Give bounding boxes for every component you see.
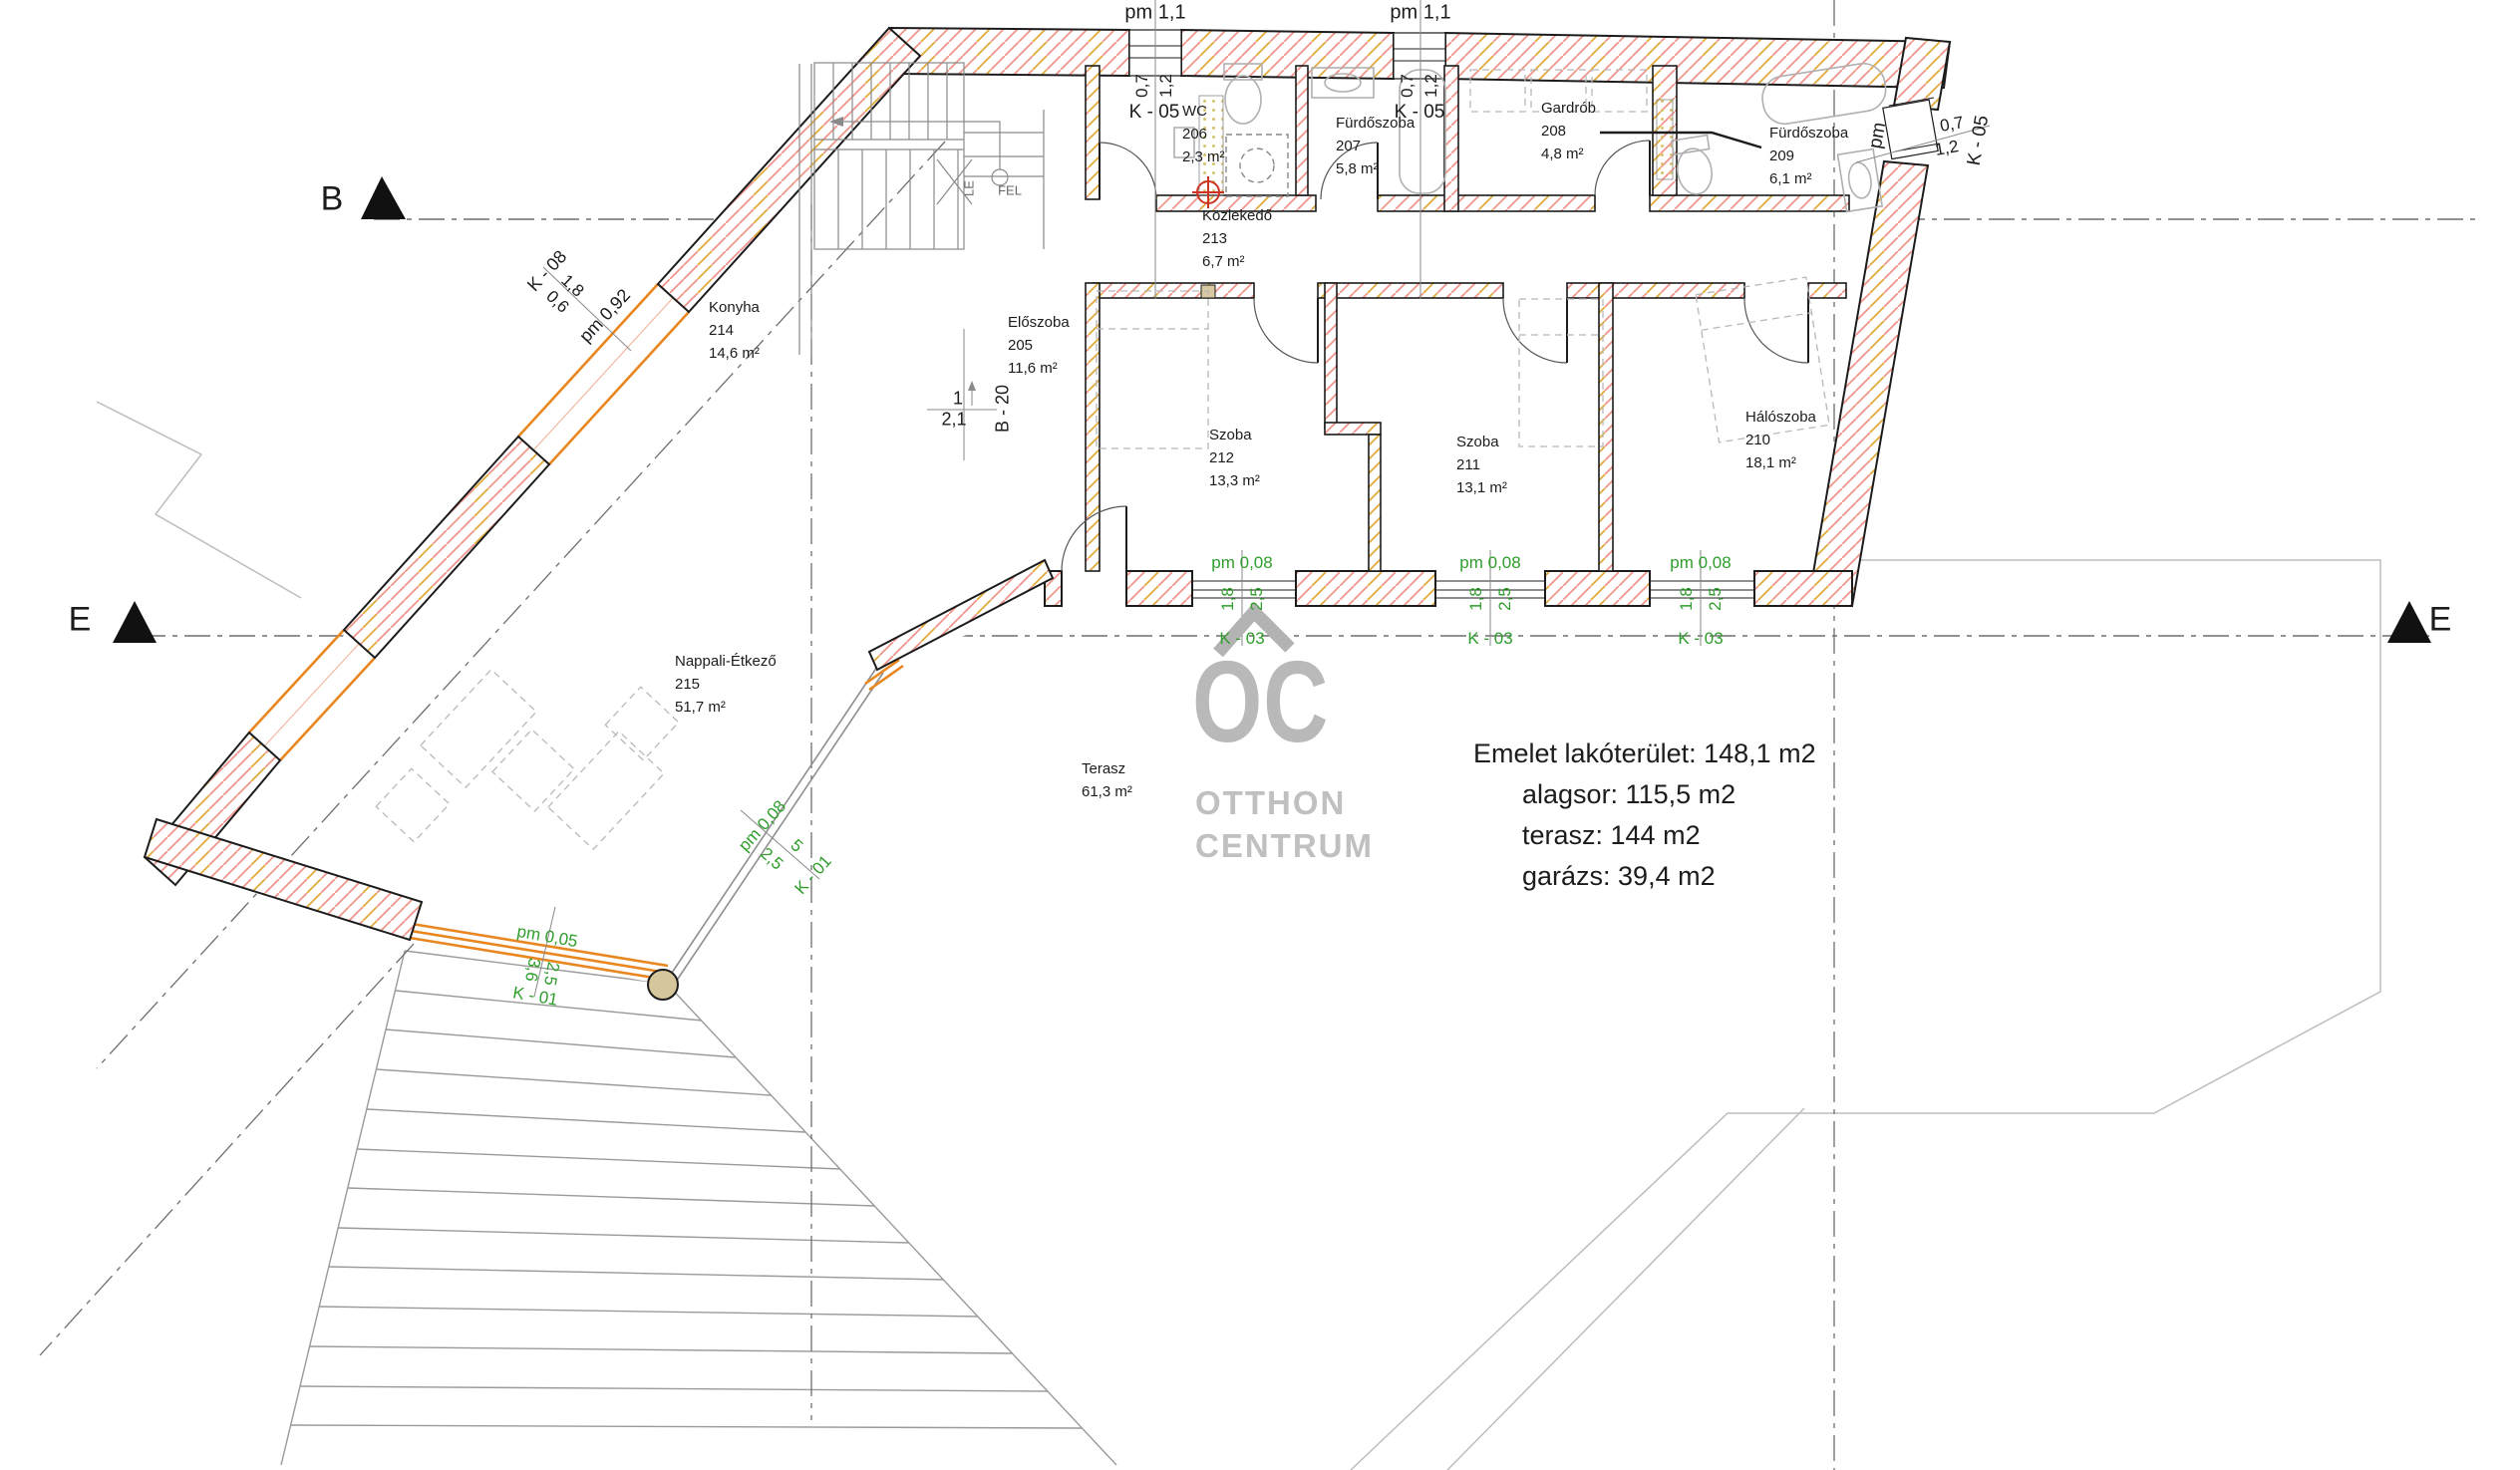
room-number: 213 <box>1202 227 1272 250</box>
room-number: 209 <box>1769 145 1848 167</box>
room-name: Fürdőszoba <box>1769 122 1848 145</box>
room-number: 208 <box>1541 120 1596 143</box>
marker-k05-mid-width: 0,7 <box>1398 74 1417 98</box>
room-name: WC <box>1182 100 1225 123</box>
room-label-kozlekedo: Közlekedő 213 6,7 m² <box>1202 204 1272 273</box>
summary-line-basement: alagsor: 115,5 m2 <box>1522 774 1816 815</box>
room-name: Előszoba <box>1008 311 1070 334</box>
summary-line-garage: garázs: 39,4 m2 <box>1522 856 1816 897</box>
section-marker-e-left: E <box>69 601 92 640</box>
marker-k03-2-pm: pm 0,08 <box>1459 553 1520 573</box>
marker-k01-lower-height: 2,5 <box>539 961 563 988</box>
room-area: 13,3 m² <box>1209 469 1260 492</box>
room-name: Terasz <box>1082 757 1132 780</box>
room-number: 206 <box>1182 123 1225 146</box>
marker-k03-3-pm: pm 0,08 <box>1670 553 1731 573</box>
room-area: 6,7 m² <box>1202 250 1272 273</box>
room-number: 214 <box>709 319 760 342</box>
marker-k05-left-height: 1,2 <box>1156 74 1176 98</box>
floor-plan-page: B E E WC 206 2,3 m² Fürdőszoba 207 5,8 m… <box>0 0 2520 1470</box>
room-number: 215 <box>675 673 777 696</box>
room-name: Konyha <box>709 296 760 319</box>
marker-k05-left-code: K - 05 <box>1129 102 1180 124</box>
marker-k05-mid-code: K - 05 <box>1395 102 1445 124</box>
marker-pm11-left: pm 1,1 <box>1124 2 1185 25</box>
marker-k03-3-height: 2,5 <box>1706 587 1726 611</box>
marker-k03-1-width: 1,8 <box>1218 587 1238 611</box>
logo-line-otthon: OTTHON <box>1195 784 1346 822</box>
room-area: 13,1 m² <box>1456 476 1507 499</box>
room-label-wc: WC 206 2,3 m² <box>1182 100 1225 168</box>
logo-oc-initials: OC <box>1192 646 1329 757</box>
stair-up-label: FEL <box>998 183 1022 198</box>
marker-k05-side-pm: pm <box>1865 121 1891 150</box>
room-label-konyha: Konyha 214 14,6 m² <box>709 296 760 365</box>
room-number: 210 <box>1745 429 1816 451</box>
room-label-furdoszoba-209: Fürdőszoba 209 6,1 m² <box>1769 122 1848 190</box>
marker-k03-2-width: 1,8 <box>1466 587 1486 611</box>
terrace-column <box>648 970 678 1000</box>
room-area: 18,1 m² <box>1745 451 1816 474</box>
room-name: Szoba <box>1456 431 1507 453</box>
vent-shaft <box>1657 100 1673 179</box>
section-marker-e-right: E <box>2429 601 2452 640</box>
marker-b20-dim: 2,1 <box>941 410 966 431</box>
room-area: 11,6 m² <box>1008 357 1070 380</box>
room-area: 2,3 m² <box>1182 146 1225 168</box>
marker-k03-3-code: K - 03 <box>1678 629 1723 649</box>
marker-k03-2-height: 2,5 <box>1495 587 1515 611</box>
room-label-eloszoba: Előszoba 205 11,6 m² <box>1008 311 1070 380</box>
summary-line-total: Emelet lakóterület: 148,1 m2 <box>1473 734 1816 774</box>
room-label-szoba-212: Szoba 212 13,3 m² <box>1209 424 1260 492</box>
room-area: 51,7 m² <box>675 696 777 719</box>
room-name: Szoba <box>1209 424 1260 446</box>
logo-line-centrum: CENTRUM <box>1195 827 1374 865</box>
room-area: 61,3 m² <box>1082 780 1132 803</box>
marker-b20-count: 1 <box>953 389 963 410</box>
stair-down-label: LE <box>962 180 977 196</box>
room-label-nappali: Nappali-Étkező 215 51,7 m² <box>675 650 777 719</box>
marker-k03-2-code: K - 03 <box>1467 629 1512 649</box>
marker-k05-mid-height: 1,2 <box>1421 74 1441 98</box>
marker-pm11-right: pm 1,1 <box>1390 2 1450 25</box>
summary-line-terrace: terasz: 144 m2 <box>1522 815 1816 856</box>
room-number: 211 <box>1456 453 1507 476</box>
room-area: 6,1 m² <box>1769 167 1848 190</box>
section-marker-b: B <box>321 180 344 219</box>
marker-k05-side-width: 0,7 <box>1939 113 1966 137</box>
room-area: 4,8 m² <box>1541 143 1596 165</box>
area-summary: Emelet lakóterület: 148,1 m2 alagsor: 11… <box>1473 734 1816 897</box>
exterior-stairs <box>281 951 1116 1465</box>
marker-k03-1-pm: pm 0,08 <box>1211 553 1272 573</box>
room-name: Gardrób <box>1541 97 1596 120</box>
room-name: Nappali-Étkező <box>675 650 777 673</box>
marker-b20-code: B - 20 <box>993 385 1014 433</box>
marker-k03-1-height: 2,5 <box>1247 587 1267 611</box>
room-label-szoba-211: Szoba 211 13,1 m² <box>1456 431 1507 499</box>
room-name: Hálószoba <box>1745 406 1816 429</box>
room-label-haloszoba: Hálószoba 210 18,1 m² <box>1745 406 1816 474</box>
room-area: 5,8 m² <box>1336 157 1415 180</box>
marker-k03-3-width: 1,8 <box>1677 587 1697 611</box>
room-area: 14,6 m² <box>709 342 760 365</box>
room-number: 207 <box>1336 135 1415 157</box>
room-number: 212 <box>1209 446 1260 469</box>
marker-k05-side-height: 1,2 <box>1934 137 1961 160</box>
room-name: Közlekedő <box>1202 204 1272 227</box>
marker-k05-left-width: 0,7 <box>1132 74 1152 98</box>
room-number: 205 <box>1008 334 1070 357</box>
room-label-gardrob: Gardrób 208 4,8 m² <box>1541 97 1596 165</box>
room-label-terasz: Terasz 61,3 m² <box>1082 757 1132 803</box>
